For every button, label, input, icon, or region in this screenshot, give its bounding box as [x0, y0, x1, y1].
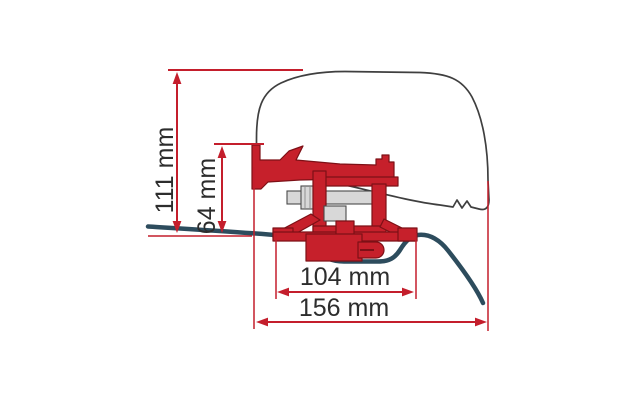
dim-label-104: 104 mm [300, 263, 390, 291]
arrowhead-right-icon [475, 318, 487, 327]
dimension-64: 64 mm [193, 146, 226, 234]
channel-clamp-block [306, 234, 362, 261]
spacer-block [324, 206, 346, 221]
clamp-block-connector [336, 221, 354, 235]
dimension-104: 104 mm [277, 263, 414, 296]
dim-label-111: 111 mm [151, 127, 179, 214]
dimension-111: 111 mm [151, 72, 181, 233]
arrowhead-left-icon [256, 318, 268, 327]
diagram-canvas: 111 mm 64 mm 104 mm 156 mm [0, 0, 640, 400]
arrowhead-right-icon [402, 288, 414, 297]
bolt-nut [301, 186, 314, 209]
arrowhead-up-icon [218, 146, 227, 158]
arrowhead-up-icon [173, 72, 182, 84]
dimension-156: 156 mm [256, 294, 487, 326]
dim-label-156: 156 mm [299, 294, 389, 322]
plate-right-cap [398, 228, 417, 241]
bolt-shaft [324, 191, 374, 204]
dim-label-64: 64 mm [193, 158, 221, 234]
arrowhead-left-icon [277, 288, 289, 297]
dimension-diagram-svg: 111 mm 64 mm 104 mm 156 mm [0, 0, 640, 400]
bolt-head [287, 191, 302, 204]
